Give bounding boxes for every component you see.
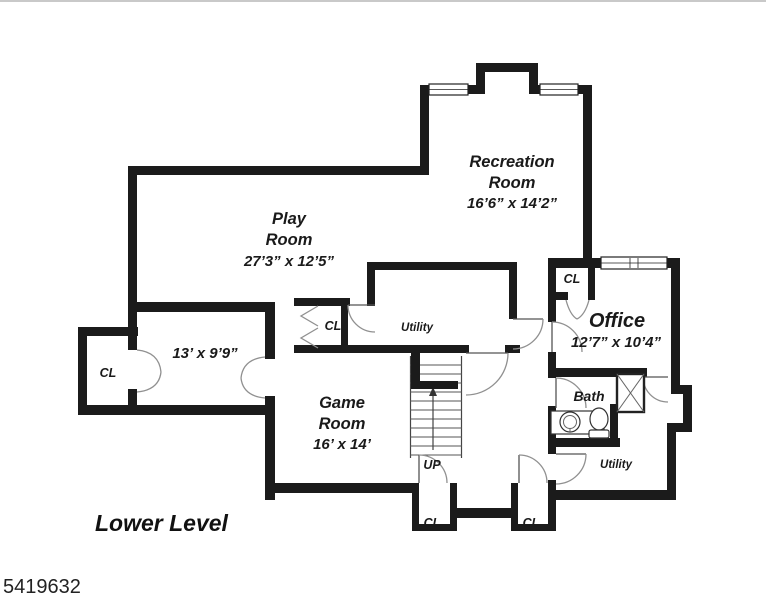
bifold-door bbox=[301, 306, 318, 326]
wall bbox=[548, 480, 556, 531]
wall bbox=[265, 483, 415, 493]
photo-id: 5419632 bbox=[3, 576, 81, 598]
level-title: Lower Level bbox=[95, 510, 229, 536]
closet-label: CL bbox=[424, 516, 441, 530]
recreation-room-dims: 16’6” x 14’2” bbox=[467, 195, 558, 212]
wall bbox=[411, 381, 458, 389]
wall bbox=[78, 405, 275, 415]
recreation-room-label: Recreation bbox=[469, 153, 554, 171]
door-arc bbox=[466, 353, 508, 395]
closet-label: CL bbox=[325, 319, 342, 333]
wall bbox=[420, 85, 429, 175]
wall bbox=[548, 292, 568, 300]
wall bbox=[450, 483, 457, 531]
bath-label: Bath bbox=[573, 388, 604, 404]
utility-right-label: Utility bbox=[600, 459, 633, 471]
door-arc bbox=[519, 455, 547, 483]
floor-plan-drawing: Recreation Room 16’6” x 14’2” Play Room … bbox=[0, 0, 766, 600]
fixtures bbox=[551, 374, 644, 438]
wall bbox=[548, 490, 674, 500]
wall bbox=[548, 258, 556, 322]
wall bbox=[294, 345, 469, 353]
office-dims: 12’7” x 10’4” bbox=[571, 334, 662, 351]
double-door-arc bbox=[241, 357, 265, 378]
closet-label: CL bbox=[523, 516, 540, 530]
shower-icon bbox=[617, 374, 644, 412]
play-room-label: Play bbox=[272, 210, 307, 228]
window bbox=[429, 84, 468, 95]
game-room-label: Game bbox=[319, 394, 365, 412]
wall bbox=[548, 438, 620, 447]
game-room-label: Room bbox=[319, 415, 366, 433]
double-door-arc bbox=[241, 378, 265, 398]
stairs-up-label: UP bbox=[423, 458, 441, 472]
wall bbox=[667, 423, 676, 500]
closet-label: CL bbox=[564, 272, 581, 286]
double-door-arc bbox=[137, 372, 161, 392]
left-room-dims: 13’ x 9’9” bbox=[172, 345, 238, 362]
wall bbox=[341, 298, 348, 353]
wall bbox=[509, 262, 517, 319]
recreation-room-label: Room bbox=[489, 174, 536, 192]
wall bbox=[671, 258, 680, 394]
windows bbox=[429, 84, 667, 269]
wall bbox=[128, 166, 137, 350]
closet-door-arc bbox=[566, 300, 577, 319]
wall bbox=[367, 262, 517, 270]
play-room-dims: 27’3” x 12’5” bbox=[243, 253, 335, 270]
wall bbox=[265, 302, 275, 359]
door-arc bbox=[513, 319, 543, 349]
wall bbox=[450, 508, 518, 518]
wall bbox=[128, 302, 275, 312]
door-arc bbox=[348, 305, 375, 332]
wall bbox=[412, 483, 419, 531]
window bbox=[540, 84, 578, 95]
utility-center-label: Utility bbox=[401, 322, 434, 334]
closet-door-arc bbox=[577, 300, 589, 319]
wall bbox=[78, 327, 87, 415]
game-room-dims: 16’ x 14’ bbox=[313, 436, 372, 453]
office-label: Office bbox=[589, 310, 645, 332]
door-arc bbox=[556, 454, 586, 484]
door-arc bbox=[643, 377, 668, 402]
wall bbox=[588, 258, 595, 300]
toilet-icon bbox=[589, 408, 609, 438]
wall bbox=[511, 483, 518, 531]
window bbox=[601, 257, 667, 269]
double-door-arc bbox=[137, 350, 161, 372]
floor-plan-page: Recreation Room 16’6” x 14’2” Play Room … bbox=[0, 0, 766, 600]
wall bbox=[476, 63, 538, 72]
wall bbox=[128, 166, 429, 175]
wall bbox=[583, 85, 592, 265]
play-room-label: Room bbox=[266, 231, 313, 249]
closet-label: CL bbox=[100, 366, 117, 380]
